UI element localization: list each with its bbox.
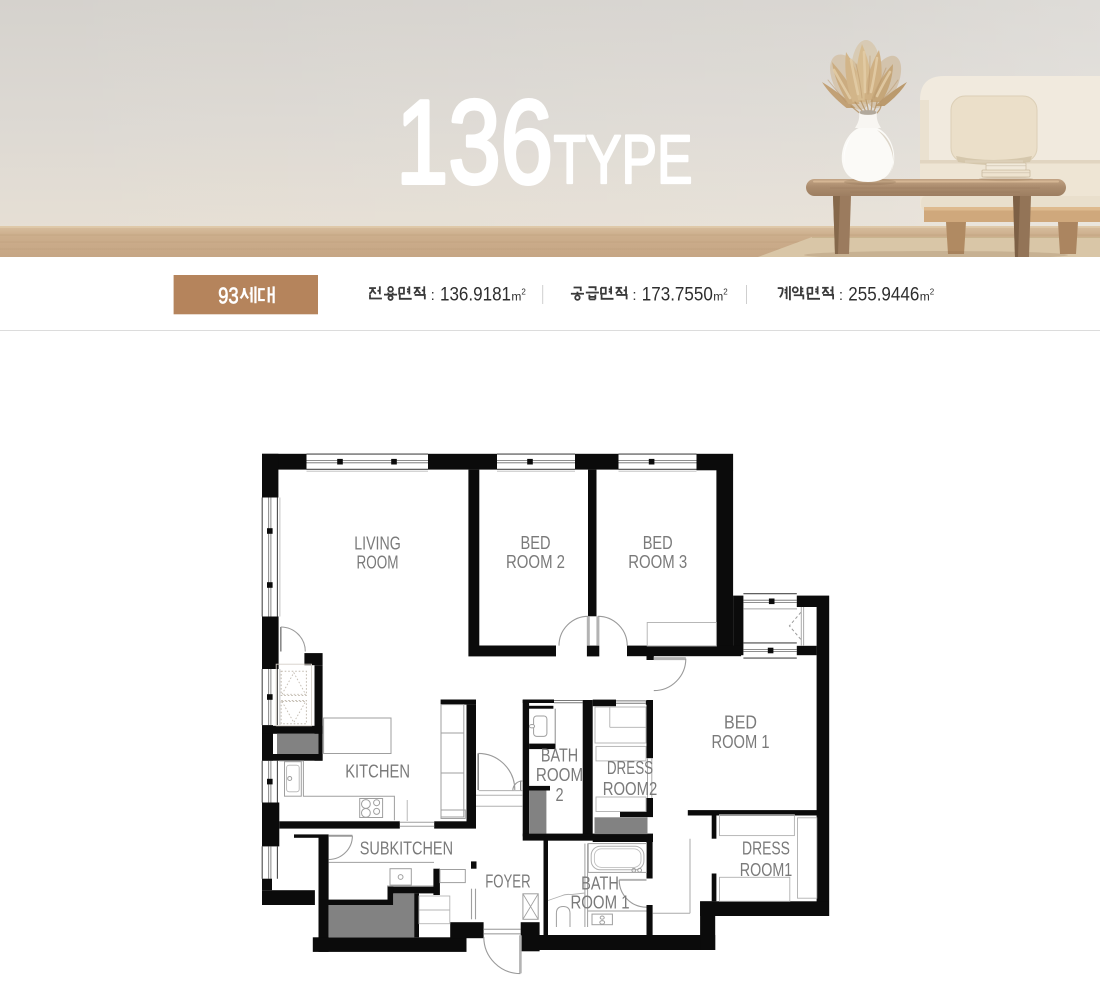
svg-text:ROOM2: ROOM2 — [603, 778, 658, 799]
svg-text:2: 2 — [555, 784, 563, 805]
svg-text:SUBKITCHEN: SUBKITCHEN — [360, 838, 453, 859]
svg-text:KITCHEN: KITCHEN — [345, 761, 410, 782]
svg-text:DRESS: DRESS — [607, 757, 653, 778]
svg-text:BED: BED — [643, 532, 673, 553]
svg-text:ROOM 3: ROOM 3 — [628, 551, 687, 572]
svg-text:LIVING: LIVING — [354, 532, 401, 553]
svg-text:ROOM 1: ROOM 1 — [570, 892, 629, 913]
svg-text:ROOM: ROOM — [357, 551, 399, 572]
svg-text:BATH: BATH — [581, 873, 619, 894]
svg-text:FOYER: FOYER — [485, 871, 530, 892]
svg-text:DRESS: DRESS — [742, 838, 790, 859]
svg-text:ROOM 1: ROOM 1 — [712, 731, 770, 752]
svg-text:BED: BED — [724, 712, 757, 733]
svg-text:ROOM: ROOM — [536, 764, 583, 785]
svg-text:ROOM1: ROOM1 — [740, 859, 793, 880]
svg-text:ROOM 2: ROOM 2 — [506, 551, 565, 572]
svg-text:BED: BED — [521, 532, 551, 553]
svg-text:BATH: BATH — [541, 745, 578, 766]
